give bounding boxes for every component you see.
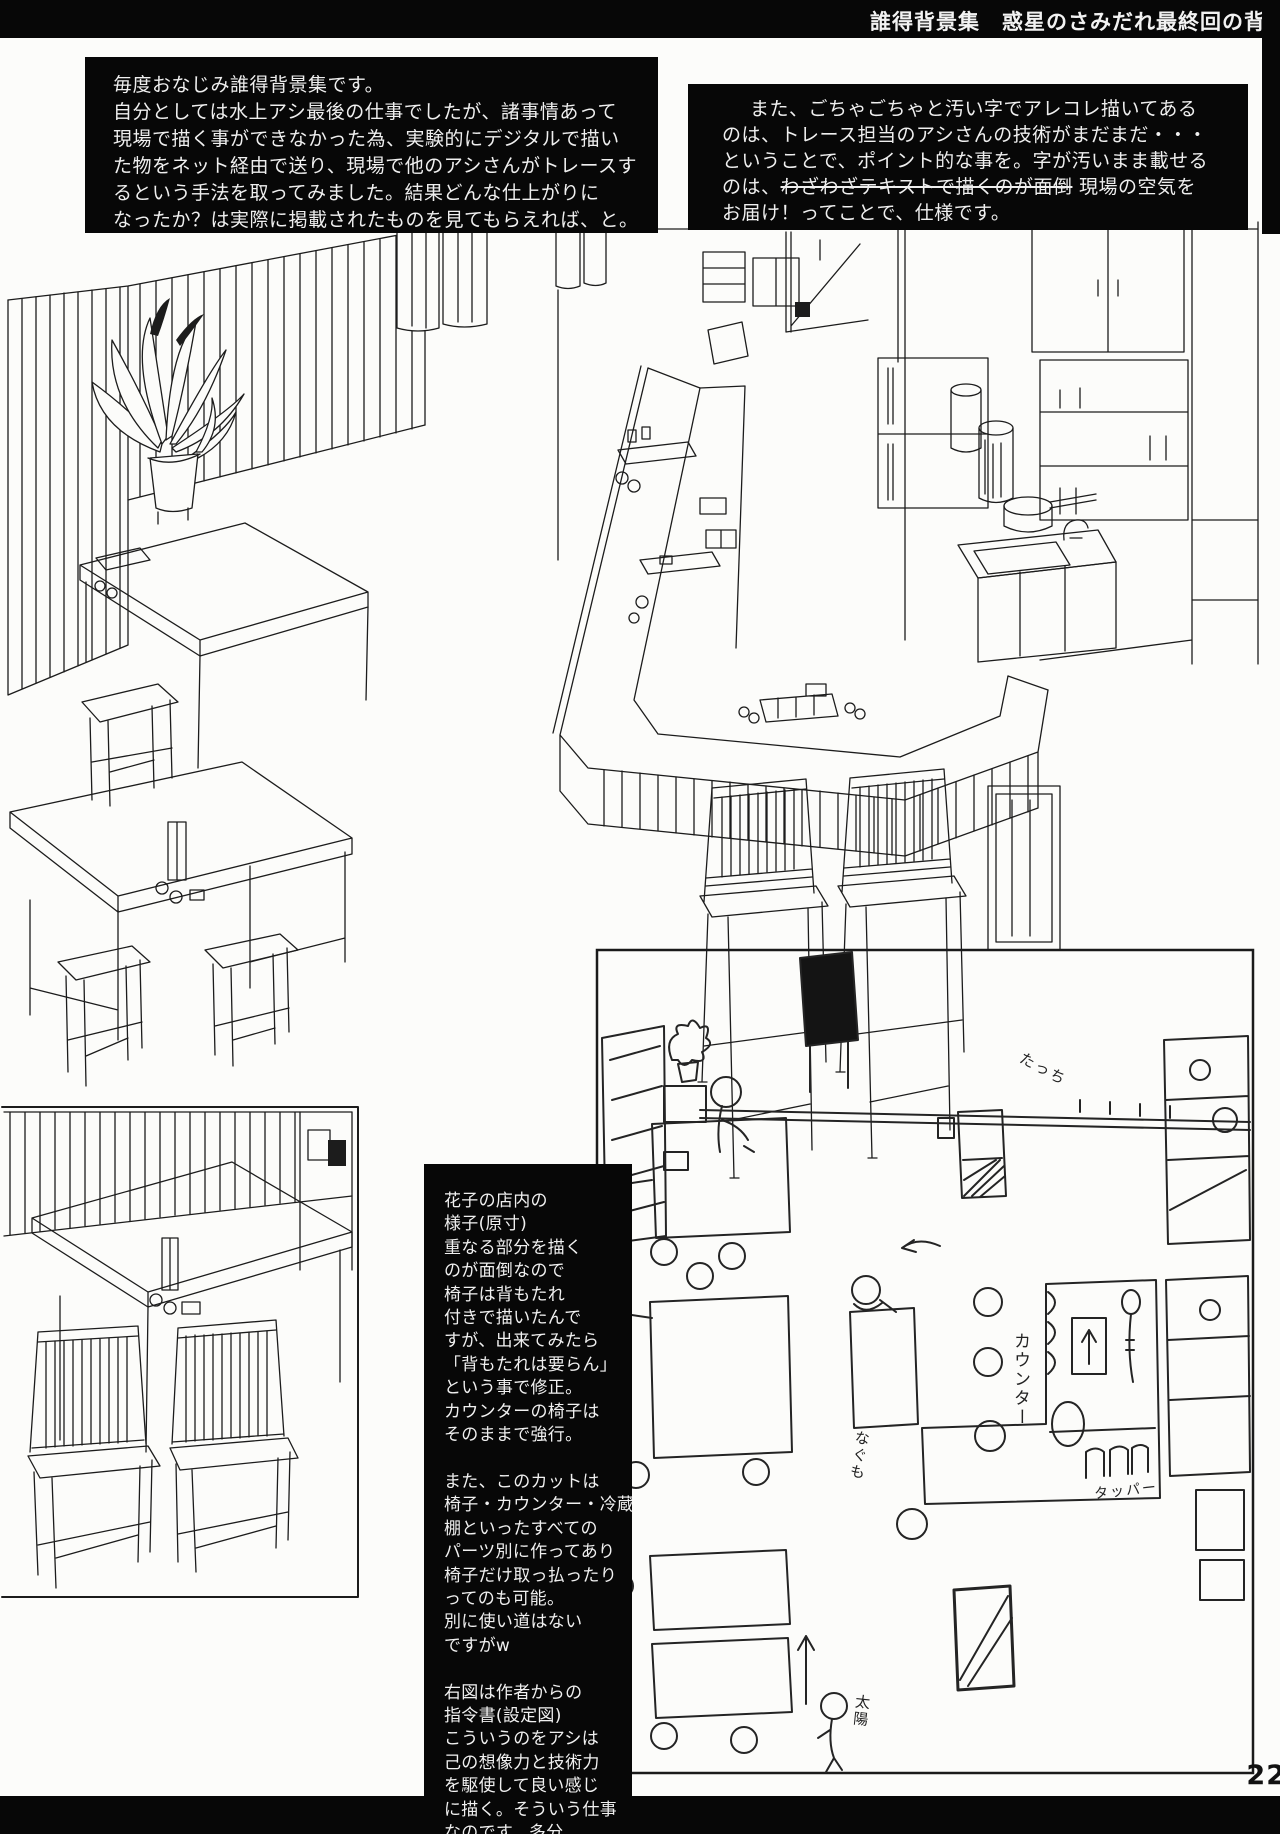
- wall-fixtures: [703, 230, 905, 640]
- kitchen: [878, 222, 1258, 664]
- illustration-layer: [0, 0, 1280, 1834]
- note-line: また、ごちゃごちゃと汚い字でアレコレ描いてある: [722, 96, 1240, 122]
- scanned-artbook-page: 誰得背景集 惑星のさみだれ最終回の背景 毎度おなじみ誰得背景集です。自分としては…: [0, 0, 1280, 1834]
- counter: [553, 366, 1048, 856]
- noren-curtain: [393, 228, 610, 331]
- slat-chair: [170, 1320, 298, 1572]
- main-drawing: [8, 222, 1258, 1178]
- note-line: のは、トレース担当のアシさんの技術がまだまだ・・・: [722, 122, 1240, 148]
- note-line: お届け！ってことで、仕様です。: [722, 200, 1240, 226]
- page-number: 22: [1246, 1760, 1280, 1791]
- right-edge-strip: [1262, 0, 1280, 234]
- note-line: のは、わざわざテキストで描くのが面倒 現場の空気を: [722, 174, 1240, 200]
- struck-text: わざわざテキストで描くのが面倒: [781, 176, 1073, 198]
- author-note-left: 毎度おなじみ誰得背景集です。自分としては水上アシ最後の仕事でしたが、諸事情あって…: [85, 57, 658, 233]
- table-upper: [80, 523, 368, 806]
- door-frame: [988, 786, 1060, 950]
- page-title: 誰得背景集 惑星のさみだれ最終回の背景: [870, 6, 1280, 36]
- note-line: ということで、ポイント的な事を。字が汚いまま載せる: [722, 148, 1240, 174]
- author-note-right: また、ごちゃごちゃと汚い字でアレコレ描いてある のは、トレース担当のアシさんの技…: [688, 84, 1248, 230]
- layout-sketch: [597, 950, 1253, 1773]
- plant: [92, 298, 244, 524]
- bottom-bar: [0, 1796, 1280, 1834]
- table-lower: [10, 762, 352, 1086]
- sketch-label-counter: カウンター: [1008, 1332, 1033, 1472]
- caption-commentary: 花子の店内の様子(原寸)重なる部分を描くのが面倒なので椅子は背もたれ付きで描いた…: [424, 1164, 632, 1834]
- slat-chair: [28, 1326, 160, 1588]
- inset-drawing: [2, 1107, 358, 1597]
- top-title-bar: 誰得背景集 惑星のさみだれ最終回の背景: [0, 0, 1280, 38]
